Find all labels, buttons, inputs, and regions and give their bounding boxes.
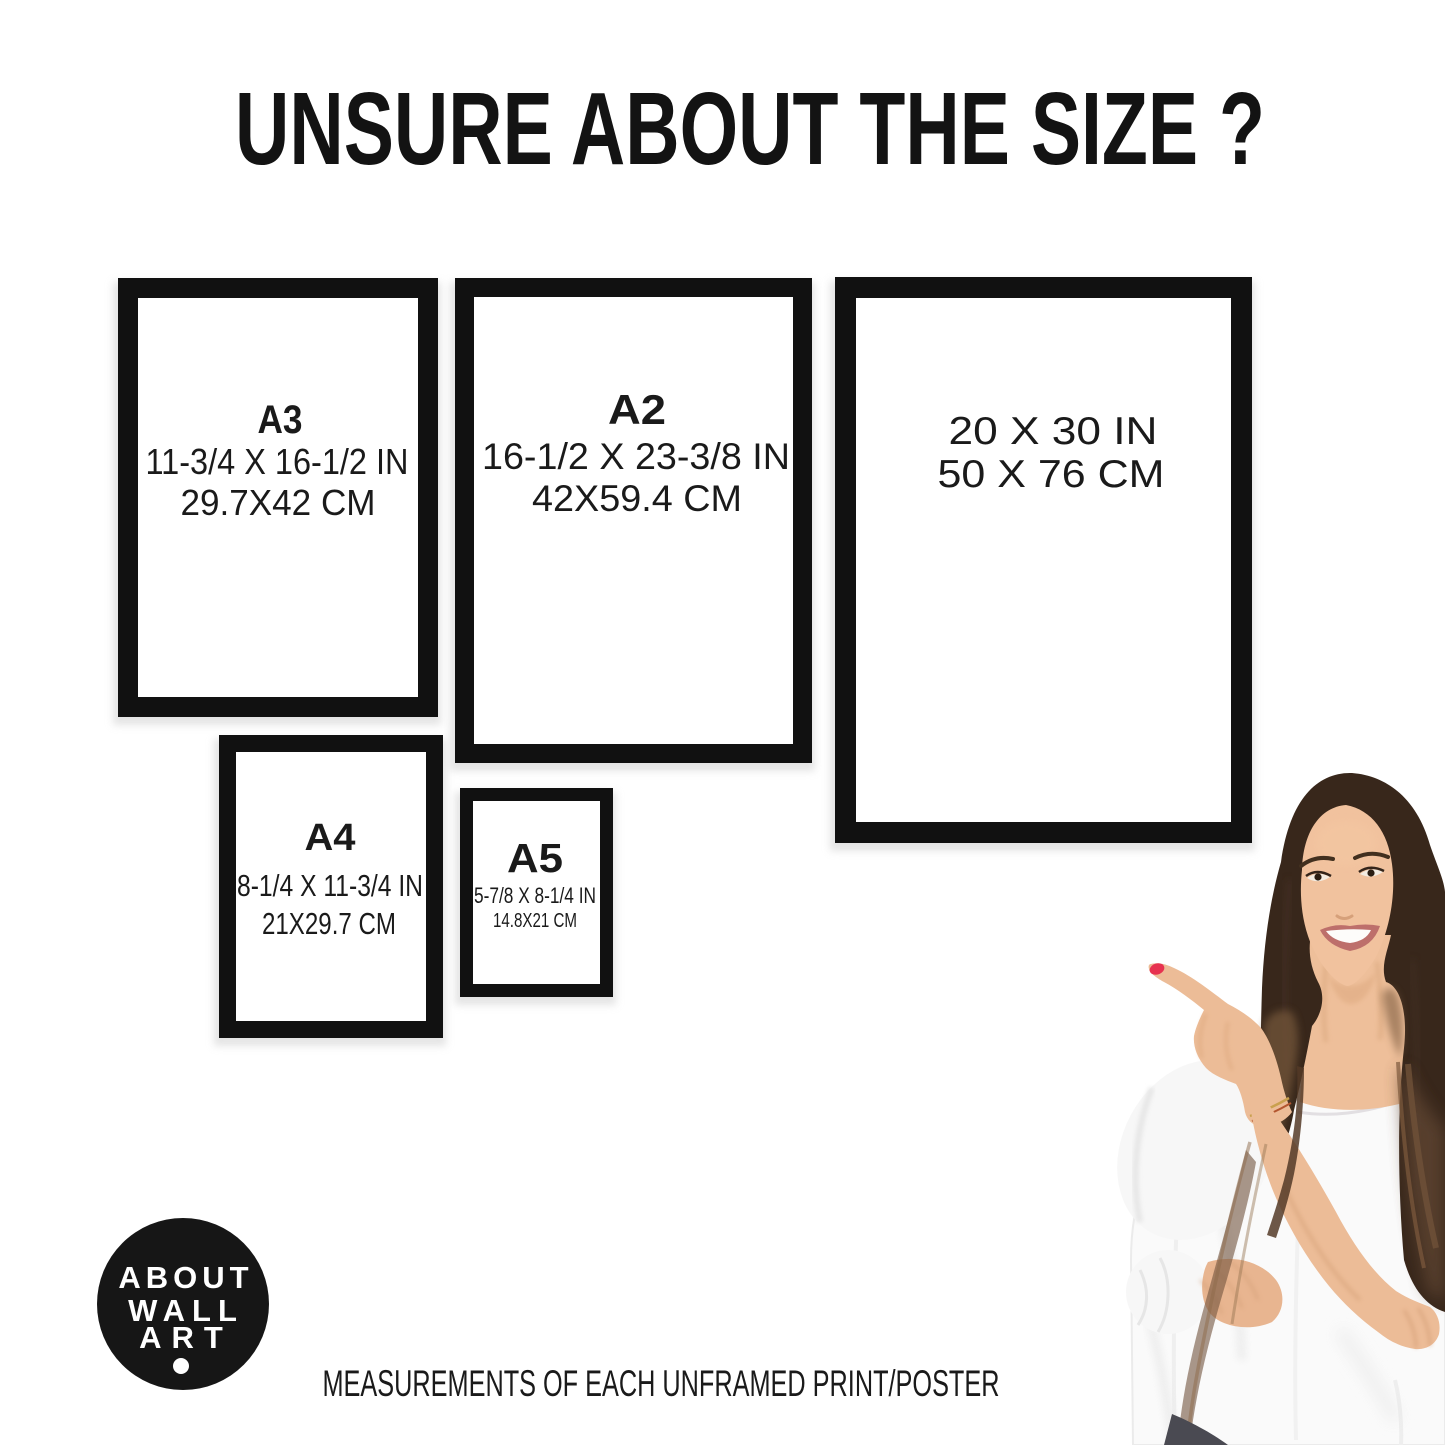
svg-text:ABOUT: ABOUT	[118, 1260, 253, 1295]
svg-text:42X59.4 CM: 42X59.4 CM	[532, 478, 742, 519]
svg-text:20 X 30 IN: 20 X 30 IN	[949, 410, 1158, 453]
svg-text:14.8X21 CM: 14.8X21 CM	[493, 910, 577, 932]
svg-text:A2: A2	[608, 386, 666, 433]
svg-text:50 X 76 CM: 50 X 76 CM	[938, 453, 1165, 496]
svg-text:16-1/2 X 23-3/8 IN: 16-1/2 X 23-3/8 IN	[482, 436, 790, 477]
svg-text:5-7/8 X 8-1/4 IN: 5-7/8 X 8-1/4 IN	[474, 883, 596, 908]
svg-text:29.7X42 CM: 29.7X42 CM	[181, 482, 376, 523]
svg-text:A5: A5	[507, 835, 563, 881]
svg-text:A3: A3	[258, 398, 303, 442]
svg-text:ART: ART	[139, 1320, 233, 1355]
svg-text:A4: A4	[305, 817, 356, 859]
svg-text:21X29.7 CM: 21X29.7 CM	[262, 906, 396, 941]
svg-text:11-3/4 X 16-1/2 IN: 11-3/4 X 16-1/2 IN	[146, 441, 409, 482]
svg-text:UNSURE ABOUT THE SIZE ?: UNSURE ABOUT THE SIZE ?	[235, 71, 1265, 186]
svg-text:MEASUREMENTS OF EACH UNFRAMED: MEASUREMENTS OF EACH UNFRAMED PRINT/POST…	[323, 1363, 1000, 1404]
svg-text:8-1/4 X 11-3/4 IN: 8-1/4 X 11-3/4 IN	[237, 868, 423, 903]
